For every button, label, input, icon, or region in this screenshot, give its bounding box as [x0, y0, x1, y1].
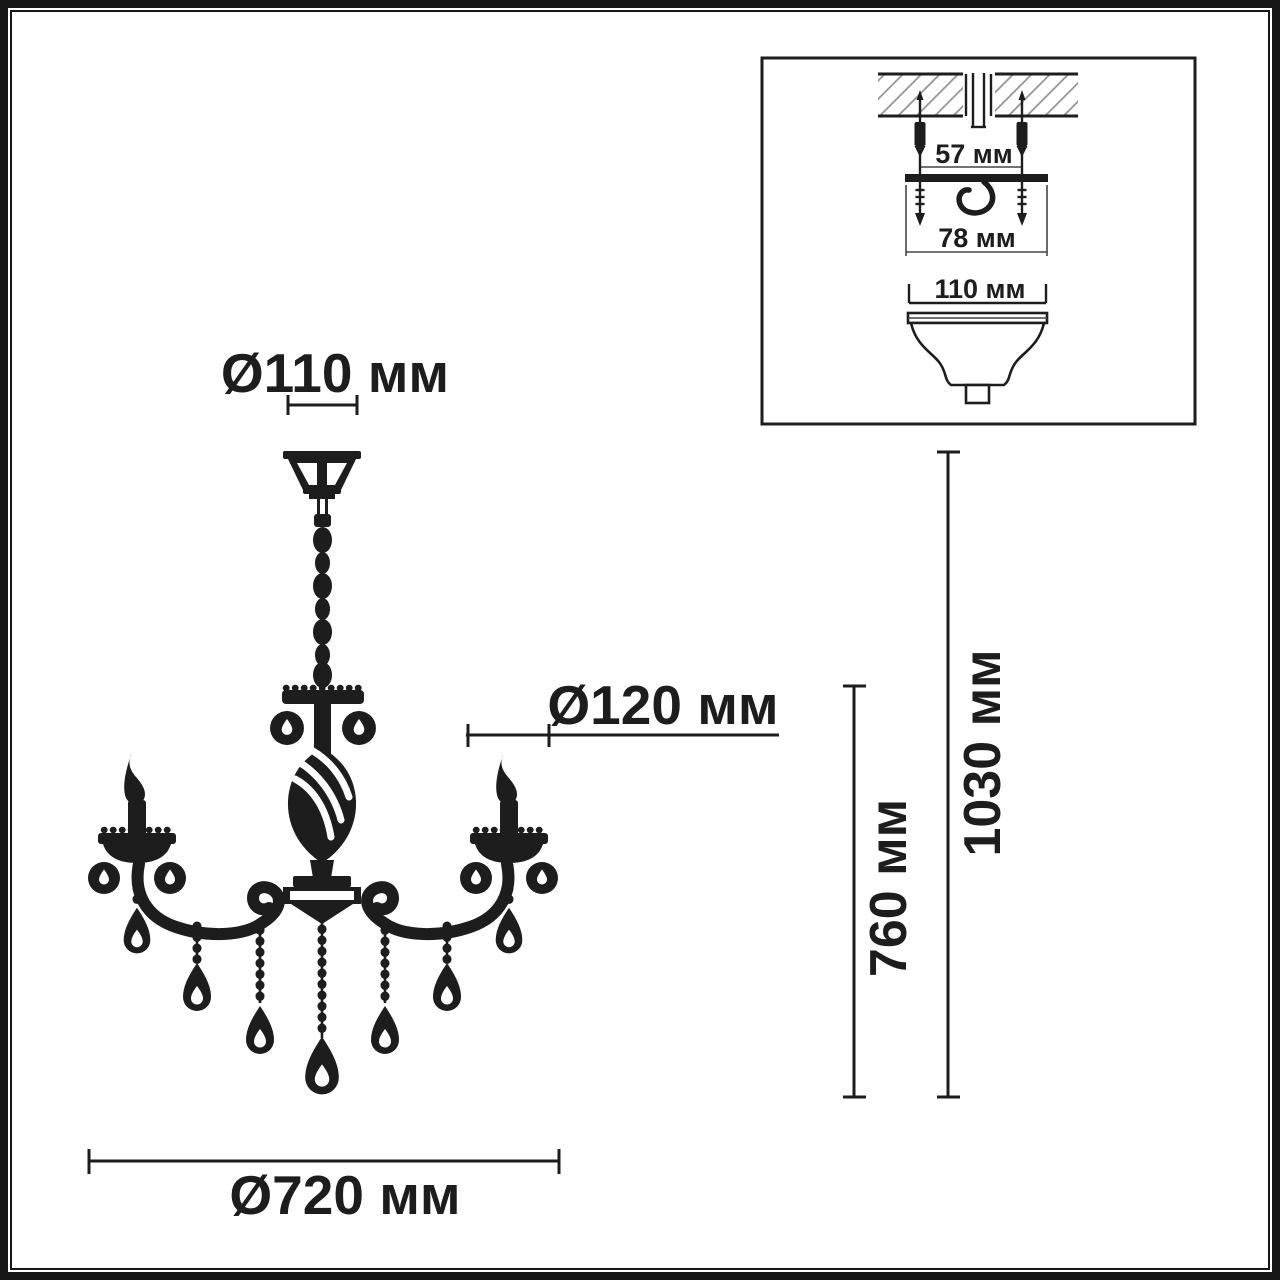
right-bobeche-pendant-b [526, 862, 558, 894]
bead-strands [183, 916, 461, 1094]
dim-body-height: 760 мм [843, 685, 918, 1098]
dim-label-78: 78 мм [938, 223, 1015, 253]
suspension-chain [313, 497, 332, 688]
left-flame [124, 753, 145, 804]
left-bobeche-pendant-a [88, 862, 120, 894]
strand-drop-4 [433, 963, 461, 1011]
strand-drop-center [305, 1037, 339, 1095]
chandelier-front-view [88, 451, 558, 1094]
strand-drop-1 [183, 963, 211, 1011]
dim-label-d110: Ø110 мм [221, 342, 449, 404]
crown-pendant-right [342, 711, 376, 745]
strand-drop-3 [371, 1006, 399, 1054]
dim-sconce-diameter: Ø120 мм [466, 674, 779, 747]
right-flame [496, 753, 517, 804]
right-bobeche-pendant-a [460, 862, 492, 894]
dimension-drawing-page: 57 мм 78 мм 110 мм [0, 0, 1280, 1280]
dim-label-57: 57 мм [935, 139, 1012, 169]
dim-label-110-inset: 110 мм [934, 274, 1025, 304]
strand-drop-2 [246, 1006, 274, 1054]
crown-pendant-left [270, 711, 304, 745]
dim-anchor-spacing: 57 мм [921, 139, 1021, 169]
mounting-bracket [905, 174, 1048, 182]
left-bobeche-pendant-b [154, 862, 186, 894]
dim-fixture-diameter: Ø720 мм [88, 1149, 560, 1226]
dim-overall-height: 1030 мм [937, 451, 1012, 1098]
chandelier-canopy [283, 451, 361, 499]
dim-canopy-diameter: Ø110 мм [221, 342, 449, 415]
technical-drawing: 57 мм 78 мм 110 мм [0, 0, 1280, 1280]
dim-label-d120: Ø120 мм [547, 674, 778, 736]
ceiling-hole-and-stud [963, 72, 995, 127]
dim-label-760: 760 мм [860, 799, 918, 977]
dim-label-1030: 1030 мм [954, 649, 1012, 856]
dim-label-d720: Ø720 мм [229, 1164, 460, 1226]
mounting-detail-inset: 57 мм 78 мм 110 мм [762, 58, 1195, 424]
